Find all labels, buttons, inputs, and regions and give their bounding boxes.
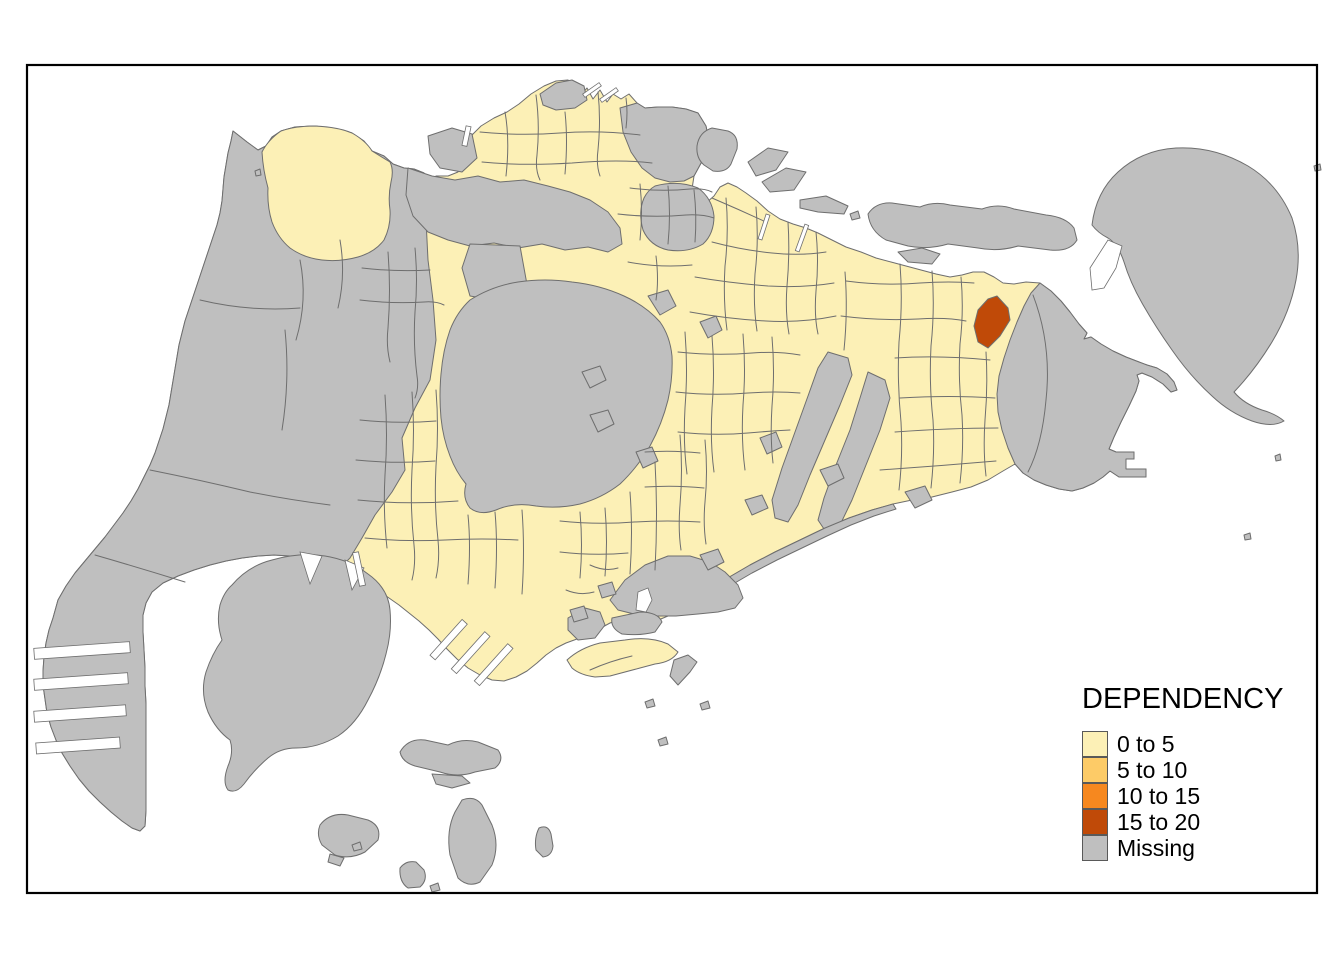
legend-item-10-15: 10 to 15 (1082, 783, 1283, 809)
island-seletar (697, 128, 737, 171)
legend-swatch-5-10 (1082, 757, 1108, 783)
legend-label: 5 to 10 (1117, 757, 1187, 784)
islet (430, 883, 440, 892)
island-south-small (400, 862, 425, 888)
island-sentosa (567, 639, 678, 677)
legend-item-5-10: 5 to 10 (1082, 757, 1283, 783)
legend-swatch-missing (1082, 835, 1108, 861)
islet (658, 737, 668, 746)
islet (645, 699, 655, 708)
plot-window: DEPENDENCY 0 to 5 5 to 10 10 to 15 15 to… (0, 0, 1344, 960)
island-bukom (400, 740, 501, 775)
island-bukom-south (432, 774, 470, 788)
island-pulau-ubin (868, 203, 1077, 250)
island-sebarok (535, 827, 553, 857)
legend: DEPENDENCY 0 to 5 5 to 10 10 to 15 15 to… (1082, 684, 1283, 861)
islet (1244, 533, 1251, 540)
region-seletar (641, 183, 714, 250)
island-st-johns (670, 655, 697, 685)
legend-label: 15 to 20 (1117, 809, 1200, 836)
islet (850, 211, 860, 220)
legend-item-0-5: 0 to 5 (1082, 731, 1283, 757)
island-pulau-ketam (898, 248, 940, 264)
legend-item-missing: Missing (1082, 835, 1283, 861)
islet (700, 701, 710, 710)
legend-swatch-10-15 (1082, 783, 1108, 809)
legend-label: 10 to 15 (1117, 783, 1200, 810)
island-jurong (203, 555, 390, 791)
legend-swatch-15-20 (1082, 809, 1108, 835)
island-southwest-pair (318, 814, 378, 856)
legend-label: 0 to 5 (1117, 731, 1175, 758)
tekong-inlet (1090, 240, 1122, 290)
islet (1275, 454, 1281, 461)
island-semakau (449, 798, 496, 884)
legend-swatch-0-5 (1082, 731, 1108, 757)
legend-label: Missing (1117, 835, 1195, 862)
legend-item-15-20: 15 to 20 (1082, 809, 1283, 835)
legend-title: DEPENDENCY (1082, 684, 1283, 714)
island-coney (800, 196, 848, 214)
